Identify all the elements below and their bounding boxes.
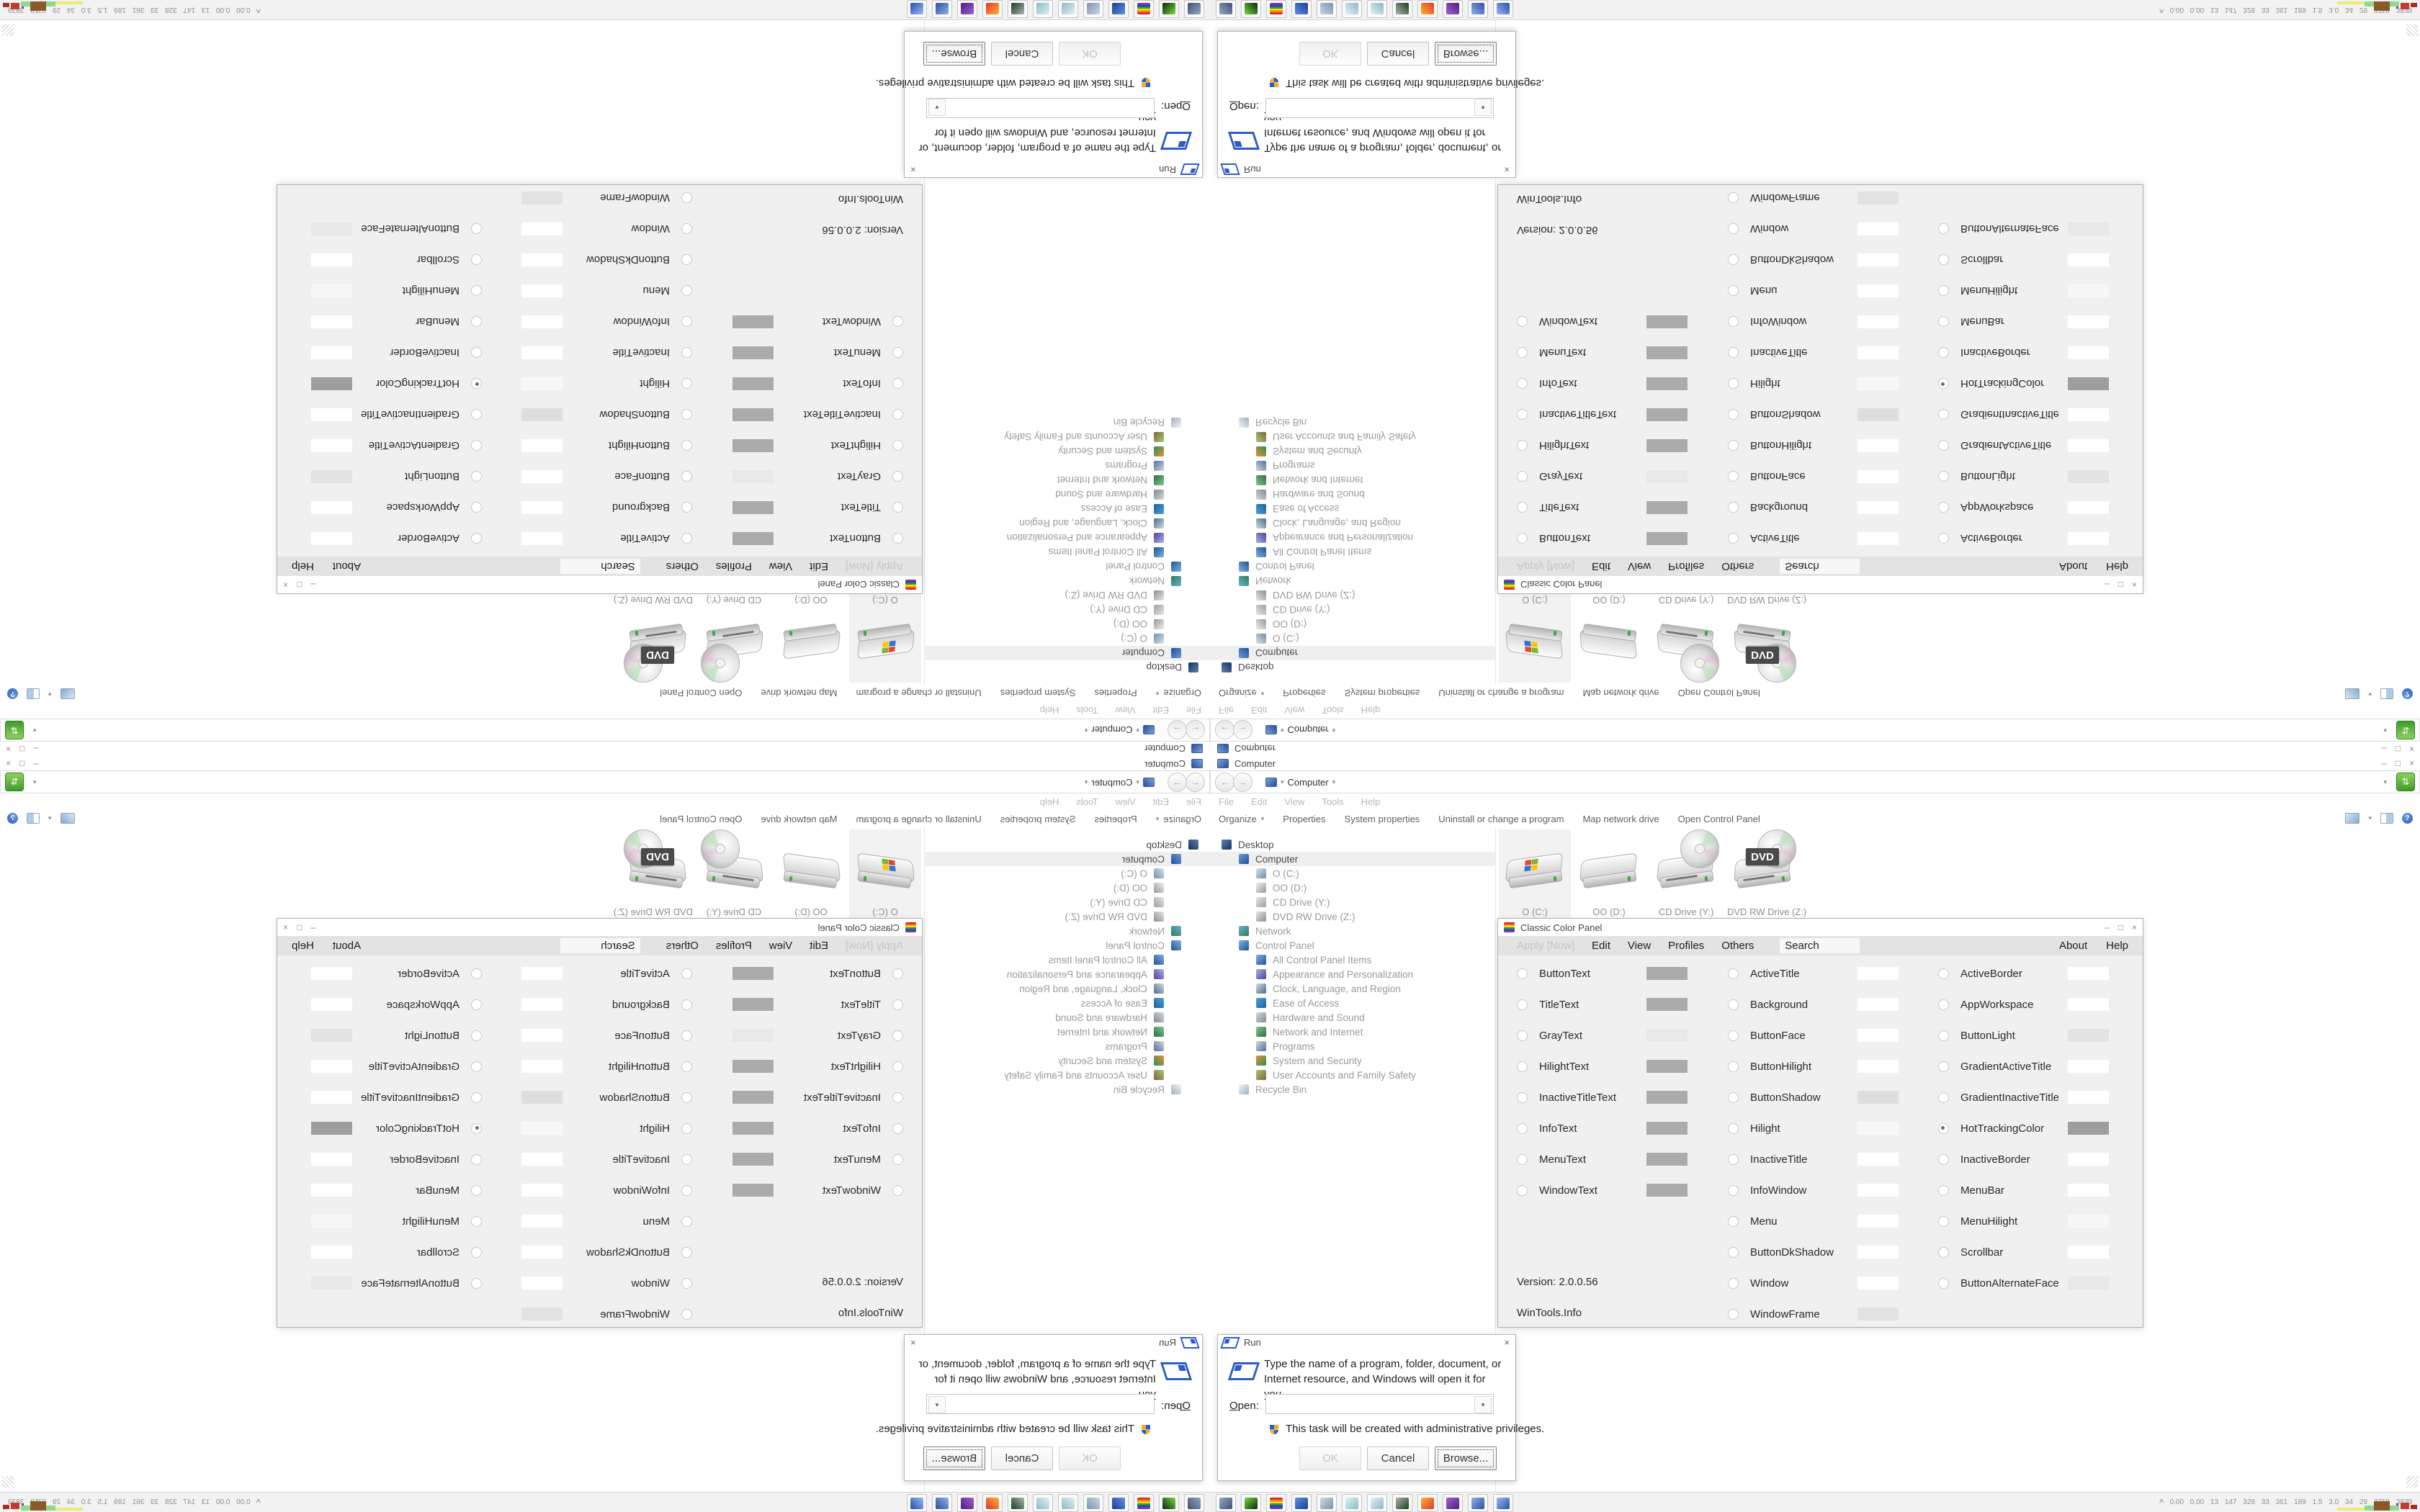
menu-item[interactable]: Profiles: [716, 940, 752, 952]
taskbar-button[interactable]: [1008, 1494, 1028, 1512]
maximize-button[interactable]: □: [297, 580, 302, 590]
tree-item[interactable]: Computer: [1210, 646, 1495, 660]
refresh-button[interactable]: ⇅: [5, 773, 24, 791]
tree-item[interactable]: All Control Panel Items: [1210, 953, 1495, 967]
drive-item[interactable]: CD Drive (Y:): [1650, 593, 1722, 683]
color-swatch[interactable]: [2068, 222, 2109, 235]
refresh-button[interactable]: ⇅: [2396, 773, 2415, 791]
drive-item[interactable]: CD Drive (Y:): [1650, 829, 1722, 919]
radio-button[interactable]: [892, 378, 903, 389]
color-swatch[interactable]: [1646, 377, 1688, 390]
tree-item[interactable]: System and Security: [1210, 444, 1495, 459]
preview-pane-icon[interactable]: [27, 688, 40, 699]
drive-item[interactable]: DVD DVD RW Drive (Z:): [1727, 593, 1799, 683]
close-button[interactable]: ×: [910, 1337, 916, 1348]
radio-button[interactable]: [1517, 1092, 1528, 1103]
tree-item[interactable]: OO (D:): [1210, 881, 1495, 895]
menu-item[interactable]: Help: [1361, 796, 1381, 807]
about-menu-item[interactable]: About: [333, 940, 361, 952]
radio-button[interactable]: [1728, 1092, 1739, 1103]
color-swatch[interactable]: [1857, 1091, 1899, 1104]
tree-item[interactable]: Desktop: [1210, 837, 1495, 852]
chevron-down-icon[interactable]: ▾: [1332, 726, 1336, 734]
radio-button[interactable]: [892, 316, 903, 327]
color-swatch[interactable]: [521, 439, 563, 452]
tree-item[interactable]: O (C:): [1210, 631, 1495, 646]
color-swatch[interactable]: [1857, 377, 1899, 390]
cancel-button[interactable]: Cancel: [991, 1446, 1053, 1470]
tray-expand-icon[interactable]: ^: [2159, 1498, 2164, 1507]
command-item[interactable]: Uninstall or change a program: [856, 688, 982, 699]
radio-button[interactable]: [1938, 254, 1949, 265]
color-swatch[interactable]: [521, 315, 563, 328]
color-swatch[interactable]: [521, 1091, 563, 1104]
color-swatch[interactable]: [732, 1122, 774, 1135]
preview-pane-icon[interactable]: [2380, 688, 2393, 699]
radio-button[interactable]: [681, 223, 692, 234]
menu-item[interactable]: File: [1186, 706, 1201, 716]
radio-button[interactable]: [892, 440, 903, 451]
radio-button[interactable]: [681, 1092, 692, 1103]
tree-item[interactable]: Programs: [925, 1039, 1210, 1053]
command-item[interactable]: System properties: [1345, 814, 1420, 824]
help-icon[interactable]: ?: [2402, 688, 2413, 699]
command-item[interactable]: Open Control Panel: [1678, 688, 1760, 699]
back-button[interactable]: ←: [1186, 721, 1205, 740]
tree-item[interactable]: CD Drive (Y:): [925, 603, 1210, 617]
command-item[interactable]: Uninstall or change a program: [1438, 814, 1564, 824]
color-swatch[interactable]: [732, 998, 774, 1011]
taskbar-button[interactable]: [1266, 1494, 1286, 1512]
tree-item[interactable]: Network: [925, 574, 1210, 588]
color-swatch[interactable]: [521, 1122, 563, 1135]
radio-button[interactable]: [471, 1061, 482, 1072]
taskbar-button[interactable]: [1367, 1494, 1387, 1512]
taskbar-button[interactable]: [1058, 1494, 1078, 1512]
chevron-down-icon[interactable]: ▾: [1332, 778, 1336, 786]
back-button[interactable]: ←: [1186, 773, 1205, 792]
command-item[interactable]: Map network drive: [1582, 688, 1659, 699]
menu-item[interactable]: Profiles: [716, 560, 752, 572]
chevron-down-icon[interactable]: ▾: [1474, 99, 1492, 116]
close-button[interactable]: ×: [283, 580, 288, 590]
organize-button[interactable]: Organize ▾: [1156, 688, 1201, 699]
color-swatch[interactable]: [1646, 1153, 1688, 1166]
radio-button[interactable]: [1728, 999, 1739, 1010]
color-swatch[interactable]: [2068, 1122, 2109, 1135]
radio-button[interactable]: [681, 1185, 692, 1196]
radio-button[interactable]: [1728, 378, 1739, 389]
taskbar-button[interactable]: [907, 1494, 927, 1512]
taskbar-button[interactable]: [932, 0, 952, 18]
menu-item[interactable]: Edit: [1153, 706, 1169, 716]
tree-item[interactable]: O (C:): [925, 631, 1210, 646]
minimize-button[interactable]: –: [310, 580, 315, 590]
menu-item[interactable]: Others: [1721, 940, 1754, 952]
radio-button[interactable]: [471, 1185, 482, 1196]
radio-button[interactable]: [681, 285, 692, 296]
tree-item[interactable]: Hardware and Sound: [1210, 1010, 1495, 1025]
tree-item[interactable]: CD Drive (Y:): [1210, 895, 1495, 909]
tree-item[interactable]: Control Panel: [925, 559, 1210, 574]
help-icon[interactable]: ?: [7, 813, 18, 824]
views-icon[interactable]: [60, 688, 75, 699]
menu-item[interactable]: Profiles: [1668, 940, 1704, 952]
tree-item[interactable]: Network: [1210, 924, 1495, 938]
radio-button[interactable]: [471, 1154, 482, 1165]
tree-item[interactable]: Recycle Bin: [1210, 1082, 1495, 1097]
radio-button[interactable]: [892, 1092, 903, 1103]
menu-item[interactable]: View: [1284, 796, 1304, 807]
tree-item[interactable]: O (C:): [1210, 866, 1495, 881]
color-swatch[interactable]: [2068, 439, 2109, 452]
open-combobox[interactable]: ▾: [1265, 98, 1494, 118]
menu-item[interactable]: File: [1219, 706, 1234, 716]
radio-button[interactable]: [681, 502, 692, 513]
maximize-button[interactable]: □: [2118, 580, 2123, 590]
menu-item[interactable]: Help: [1040, 796, 1059, 807]
menu-item[interactable]: View: [1628, 940, 1651, 952]
close-button[interactable]: ×: [2132, 580, 2137, 590]
minimize-button[interactable]: –: [310, 922, 315, 932]
taskbar-button[interactable]: [1184, 0, 1204, 18]
color-swatch[interactable]: [2068, 408, 2109, 421]
restore-button[interactable]: □: [2396, 758, 2401, 768]
taskbar-button[interactable]: [957, 0, 977, 18]
color-swatch[interactable]: [1857, 1029, 1899, 1042]
tree-item[interactable]: O (C:): [925, 866, 1210, 881]
taskbar-button[interactable]: [1342, 0, 1362, 18]
radio-button[interactable]: [471, 223, 482, 234]
close-button[interactable]: ×: [910, 164, 916, 175]
color-swatch[interactable]: [1857, 998, 1899, 1011]
color-swatch[interactable]: [521, 501, 563, 514]
tree-item[interactable]: Programs: [1210, 1039, 1495, 1053]
radio-button[interactable]: [681, 1309, 692, 1320]
radio-button[interactable]: [1728, 1154, 1739, 1165]
radio-button[interactable]: [1728, 533, 1739, 544]
radio-button[interactable]: [1517, 409, 1528, 420]
color-swatch[interactable]: [1857, 1060, 1899, 1073]
drive-item[interactable]: OO (D:): [775, 829, 847, 919]
taskbar-button[interactable]: [982, 1494, 1003, 1512]
tree-item[interactable]: CD Drive (Y:): [1210, 603, 1495, 617]
color-swatch[interactable]: [2068, 967, 2109, 980]
radio-button[interactable]: [1728, 254, 1739, 265]
drive-item[interactable]: OO (D:): [1573, 593, 1645, 683]
views-icon[interactable]: [60, 813, 75, 824]
color-swatch[interactable]: [311, 1060, 352, 1073]
radio-button[interactable]: [1517, 378, 1528, 389]
color-swatch[interactable]: [1857, 284, 1899, 297]
taskbar-button[interactable]: [1493, 0, 1513, 18]
history-caret-icon[interactable]: ▾: [1136, 778, 1139, 786]
color-swatch[interactable]: [1646, 346, 1688, 359]
menu-item[interactable]: Others: [666, 940, 699, 952]
tree-item[interactable]: Desktop: [925, 660, 1210, 675]
views-caret-icon[interactable]: ▾: [2368, 690, 2372, 698]
color-swatch[interactable]: [311, 967, 352, 980]
color-swatch[interactable]: [2068, 1215, 2109, 1228]
address-bar[interactable]: ← → ▾ Computer ▾ ▾ ⇅: [1210, 719, 2420, 742]
color-swatch[interactable]: [1646, 1184, 1688, 1197]
close-button[interactable]: ×: [2409, 758, 2414, 768]
radio-button[interactable]: [681, 968, 692, 979]
tree-item[interactable]: System and Security: [1210, 1053, 1495, 1068]
radio-button[interactable]: [1517, 1185, 1528, 1196]
tree-item[interactable]: Control Panel: [1210, 559, 1495, 574]
radio-button[interactable]: [681, 1061, 692, 1072]
minimize-button[interactable]: –: [2105, 922, 2110, 932]
color-swatch[interactable]: [311, 222, 352, 235]
color-swatch[interactable]: [1646, 967, 1688, 980]
color-swatch[interactable]: [311, 1246, 352, 1259]
tree-item[interactable]: DVD RW Drive (Z:): [925, 909, 1210, 924]
color-swatch[interactable]: [521, 967, 563, 980]
menu-item[interactable]: File: [1219, 796, 1234, 807]
chevron-down-icon[interactable]: ▾: [1085, 778, 1088, 786]
radio-button[interactable]: [892, 533, 903, 544]
command-item[interactable]: System properties: [1345, 688, 1420, 699]
tree-item[interactable]: Desktop: [1210, 660, 1495, 675]
color-swatch[interactable]: [1646, 998, 1688, 1011]
back-button[interactable]: ←: [1215, 721, 1234, 740]
radio-button[interactable]: [1728, 1123, 1739, 1134]
tree-item[interactable]: Clock, Language, and Region: [925, 981, 1210, 996]
color-swatch[interactable]: [732, 501, 774, 514]
views-caret-icon[interactable]: ▾: [2368, 814, 2372, 822]
radio-button[interactable]: [471, 254, 482, 265]
tree-item[interactable]: User Accounts and Family Safety: [1210, 1068, 1495, 1082]
command-item[interactable]: System properties: [1000, 688, 1076, 699]
drive-item[interactable]: O (C:): [849, 593, 921, 683]
radio-button[interactable]: [892, 471, 903, 482]
open-combobox[interactable]: ▾: [926, 98, 1155, 118]
taskbar-button[interactable]: [1083, 1494, 1103, 1512]
tree-item[interactable]: Recycle Bin: [925, 415, 1210, 430]
taskbar-button[interactable]: [1134, 0, 1154, 18]
resize-grip[interactable]: [2, 24, 14, 36]
minimize-button[interactable]: –: [2382, 744, 2387, 754]
drive-item[interactable]: CD Drive (Y:): [698, 593, 770, 683]
radio-button[interactable]: [1517, 999, 1528, 1010]
radio-button[interactable]: [1728, 1061, 1739, 1072]
radio-button[interactable]: [471, 1216, 482, 1227]
radio-button[interactable]: [681, 1154, 692, 1165]
color-swatch[interactable]: [1857, 1215, 1899, 1228]
tree-item[interactable]: Programs: [925, 459, 1210, 473]
resize-grip[interactable]: [2406, 24, 2418, 36]
menu-item[interactable]: Help: [1040, 706, 1059, 716]
color-swatch[interactable]: [1857, 1153, 1899, 1166]
radio-button[interactable]: [1938, 1154, 1949, 1165]
color-swatch[interactable]: [1857, 253, 1899, 266]
forward-button[interactable]: →: [1233, 773, 1252, 792]
tree-item[interactable]: OO (D:): [1210, 617, 1495, 631]
radio-button[interactable]: [1938, 1030, 1949, 1041]
forward-button[interactable]: →: [1168, 773, 1187, 792]
cancel-button[interactable]: Cancel: [1367, 42, 1429, 66]
radio-button[interactable]: [471, 378, 482, 389]
close-button[interactable]: ×: [283, 922, 288, 932]
color-swatch[interactable]: [311, 346, 352, 359]
cancel-button[interactable]: Cancel: [1367, 1446, 1429, 1470]
color-swatch[interactable]: [311, 1153, 352, 1166]
color-swatch[interactable]: [732, 1184, 774, 1197]
drive-item[interactable]: O (C:): [1499, 829, 1571, 919]
color-swatch[interactable]: [1857, 1122, 1899, 1135]
drive-item[interactable]: DVD DVD RW Drive (Z:): [1727, 829, 1799, 919]
color-swatch[interactable]: [311, 1029, 352, 1042]
tree-item[interactable]: Computer: [925, 646, 1210, 660]
color-swatch[interactable]: [521, 253, 563, 266]
chevron-down-icon[interactable]: ▾: [928, 99, 946, 116]
color-swatch[interactable]: [732, 315, 774, 328]
tree-item[interactable]: OO (D:): [925, 881, 1210, 895]
help-menu-item[interactable]: Help: [292, 560, 314, 572]
menu-item[interactable]: Edit: [1251, 706, 1267, 716]
breadcrumb[interactable]: Computer: [1288, 777, 1329, 788]
restore-button[interactable]: □: [2396, 744, 2401, 754]
address-dropdown-icon[interactable]: ▾: [2383, 726, 2387, 734]
radio-button[interactable]: [1938, 999, 1949, 1010]
menu-item[interactable]: Edit: [810, 560, 828, 572]
organize-button[interactable]: Organize ▾: [1156, 814, 1201, 824]
radio-button[interactable]: [1728, 471, 1739, 482]
color-swatch[interactable]: [311, 253, 352, 266]
radio-button[interactable]: [1938, 1247, 1949, 1258]
taskbar-button[interactable]: [1291, 0, 1312, 18]
color-swatch[interactable]: [521, 346, 563, 359]
tree-item[interactable]: Computer: [1210, 852, 1495, 866]
tree-item[interactable]: OO (D:): [925, 617, 1210, 631]
taskbar-button[interactable]: [1317, 0, 1337, 18]
radio-button[interactable]: [892, 502, 903, 513]
color-swatch[interactable]: [521, 1246, 563, 1259]
color-swatch[interactable]: [311, 315, 352, 328]
command-item[interactable]: System properties: [1000, 814, 1076, 824]
radio-button[interactable]: [1728, 347, 1739, 358]
tree-item[interactable]: System and Security: [925, 1053, 1210, 1068]
color-swatch[interactable]: [1857, 532, 1899, 545]
radio-button[interactable]: [1728, 440, 1739, 451]
menu-item[interactable]: View: [1116, 796, 1136, 807]
address-bar[interactable]: ← → ▾ Computer ▾ ▾ ⇅: [0, 770, 1210, 793]
color-swatch[interactable]: [311, 284, 352, 297]
color-swatch[interactable]: [521, 222, 563, 235]
taskbar-button[interactable]: [1443, 0, 1463, 18]
color-swatch[interactable]: [1646, 1122, 1688, 1135]
tree-item[interactable]: Hardware and Sound: [925, 487, 1210, 502]
preview-pane-icon[interactable]: [27, 813, 40, 824]
radio-button[interactable]: [892, 1030, 903, 1041]
color-swatch[interactable]: [732, 532, 774, 545]
color-swatch[interactable]: [1646, 439, 1688, 452]
menu-item[interactable]: View: [1628, 560, 1651, 572]
radio-button[interactable]: [681, 378, 692, 389]
command-item[interactable]: Properties: [1283, 688, 1325, 699]
taskbar-button[interactable]: [1108, 1494, 1129, 1512]
tree-item[interactable]: System and Security: [925, 444, 1210, 459]
color-swatch[interactable]: [1857, 315, 1899, 328]
tree-item[interactable]: Network and Internet: [1210, 473, 1495, 487]
organize-button[interactable]: Organize ▾: [1219, 814, 1264, 824]
radio-button[interactable]: [892, 1061, 903, 1072]
tray-expand-icon[interactable]: ^: [256, 1498, 261, 1507]
color-swatch[interactable]: [732, 377, 774, 390]
radio-button[interactable]: [1728, 502, 1739, 513]
color-swatch[interactable]: [1857, 192, 1899, 204]
color-swatch[interactable]: [2068, 1029, 2109, 1042]
chevron-down-icon[interactable]: ▾: [1474, 1396, 1492, 1413]
color-swatch[interactable]: [732, 1029, 774, 1042]
radio-button[interactable]: [1728, 968, 1739, 979]
radio-button[interactable]: [1517, 1123, 1528, 1134]
help-icon[interactable]: ?: [7, 688, 18, 699]
tree-item[interactable]: Ease of Access: [925, 996, 1210, 1010]
color-swatch[interactable]: [732, 346, 774, 359]
drive-item[interactable]: DVD DVD RW Drive (Z:): [621, 593, 693, 683]
radio-button[interactable]: [1517, 1030, 1528, 1041]
color-panel-search-input[interactable]: Search: [560, 559, 640, 574]
radio-button[interactable]: [892, 1154, 903, 1165]
radio-button[interactable]: [1517, 968, 1528, 979]
color-swatch[interactable]: [732, 1060, 774, 1073]
resize-grip[interactable]: [2, 1476, 14, 1488]
maximize-button[interactable]: □: [297, 922, 302, 932]
taskbar-button[interactable]: [1493, 1494, 1513, 1512]
views-icon[interactable]: [2345, 813, 2359, 824]
tree-item[interactable]: Network and Internet: [925, 1025, 1210, 1039]
browse-button[interactable]: Browse...: [1435, 1446, 1497, 1470]
color-swatch[interactable]: [311, 1277, 352, 1290]
tree-item[interactable]: Network: [925, 924, 1210, 938]
taskbar-button[interactable]: [1417, 1494, 1438, 1512]
taskbar-button[interactable]: [1058, 0, 1078, 18]
radio-button[interactable]: [681, 1247, 692, 1258]
address-dropdown-icon[interactable]: ▾: [33, 726, 37, 734]
tree-item[interactable]: Programs: [1210, 459, 1495, 473]
color-swatch[interactable]: [311, 1184, 352, 1197]
taskbar-button[interactable]: [1159, 0, 1179, 18]
color-swatch[interactable]: [311, 377, 352, 390]
tree-item[interactable]: User Accounts and Family Safety: [1210, 430, 1495, 444]
tree-item[interactable]: Hardware and Sound: [1210, 487, 1495, 502]
radio-button[interactable]: [681, 1030, 692, 1041]
radio-button[interactable]: [1938, 1061, 1949, 1072]
color-swatch[interactable]: [2068, 1153, 2109, 1166]
breadcrumb[interactable]: Computer: [1091, 777, 1132, 788]
command-item[interactable]: Properties: [1094, 814, 1137, 824]
tree-item[interactable]: All Control Panel Items: [925, 545, 1210, 559]
history-caret-icon[interactable]: ▾: [1281, 726, 1284, 734]
tray-expand-icon[interactable]: ^: [2159, 6, 2164, 14]
close-button[interactable]: ×: [1504, 1337, 1510, 1348]
chevron-down-icon[interactable]: ▾: [928, 1396, 946, 1413]
color-swatch[interactable]: [521, 532, 563, 545]
taskbar-button[interactable]: [1216, 0, 1236, 18]
color-swatch[interactable]: [1857, 222, 1899, 235]
radio-button[interactable]: [1728, 1185, 1739, 1196]
restore-button[interactable]: □: [19, 744, 24, 754]
tree-item[interactable]: Network and Internet: [925, 473, 1210, 487]
minimize-button[interactable]: –: [33, 758, 38, 768]
taskbar-button[interactable]: [1108, 0, 1129, 18]
help-menu-item[interactable]: Help: [292, 940, 314, 952]
tree-item[interactable]: All Control Panel Items: [925, 953, 1210, 967]
radio-button[interactable]: [892, 409, 903, 420]
menu-item[interactable]: Others: [1721, 560, 1754, 572]
